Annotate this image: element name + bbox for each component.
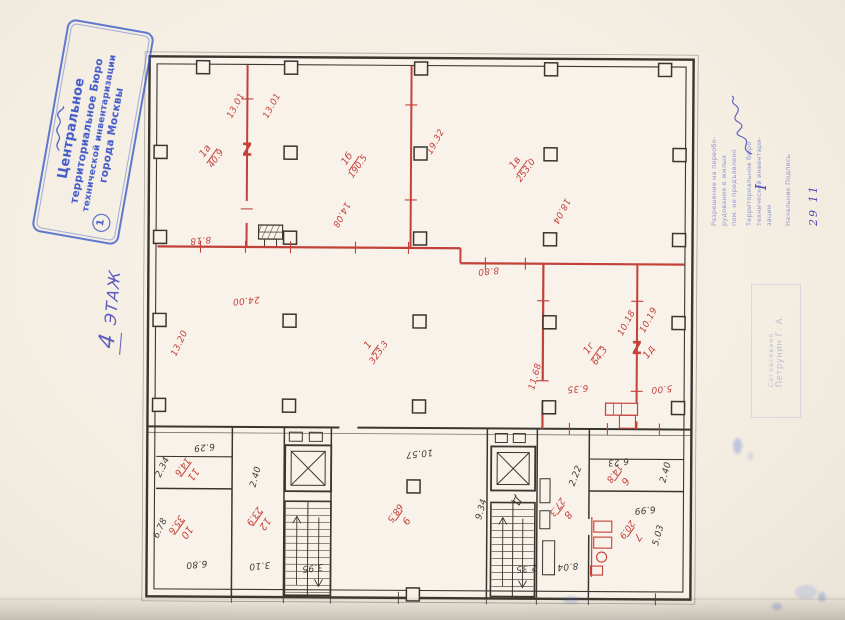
approval-line: Согласовано	[767, 315, 775, 387]
permit-line: зации	[765, 98, 775, 226]
bti-line: города Москвы	[88, 30, 138, 241]
permit-stamp: Разрешение на переобо-рудование в жилыхп…	[706, 94, 830, 232]
floor-plan: 1а40.91б190.51в253.01323.31г64.31д1114.6…	[138, 48, 706, 611]
floor-word: ЭТАЖ	[101, 268, 125, 327]
bti-line: Центральное	[46, 23, 99, 235]
bti-line: технической инвентаризации	[76, 28, 124, 239]
bti-stamp-lines: Центральноетерриториальное Бюротехническ…	[33, 20, 138, 241]
bti-line: территориальное Бюро	[63, 26, 113, 237]
permit-roman-numeral: I	[752, 184, 770, 190]
bti-stamp: Центральноетерриториальное Бюротехническ…	[31, 18, 155, 246]
permit-line: Начальник Подпись	[784, 98, 794, 226]
floor-number: 4	[94, 328, 122, 355]
floor-number-note: 4ЭТАЖ	[94, 230, 129, 354]
approval-line: Петрунин Г. А.	[775, 315, 785, 387]
ink-smudge	[733, 438, 742, 454]
permit-date: 29 11	[807, 185, 820, 227]
scanner-edge-shadow	[0, 594, 845, 620]
approval-stamp: СогласованоПетрунин Г. А.	[751, 284, 801, 418]
permit-line: Разрешение на переобо-	[710, 98, 720, 226]
plan-svg	[138, 48, 706, 611]
scanned-floorplan-page: 1а40.91б190.51в253.01323.31г64.31д1114.6…	[0, 0, 845, 620]
approval-stamp-lines: СогласованоПетрунин Г. А.	[767, 315, 785, 387]
ink-smudge	[748, 452, 753, 460]
signature-scribble	[726, 94, 760, 156]
stamp-flourish-icon	[49, 103, 71, 153]
